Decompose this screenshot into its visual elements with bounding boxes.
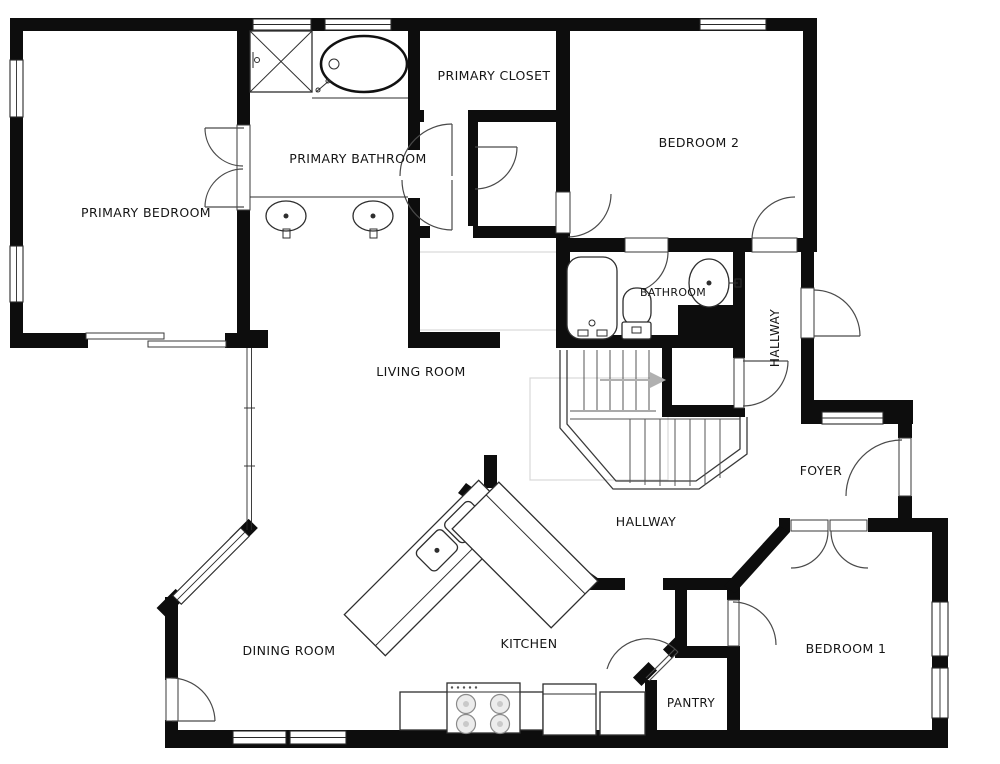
room-label-bedroom-2: BEDROOM 2 xyxy=(659,135,740,150)
room-label-bathroom: BATHROOM xyxy=(640,286,706,299)
room-label-pantry: PANTRY xyxy=(667,696,716,710)
window xyxy=(290,731,346,744)
room-label-primary-bedroom: PRIMARY BEDROOM xyxy=(81,205,211,220)
door xyxy=(625,238,668,293)
front-door xyxy=(846,438,911,496)
room-label-primary-bathroom: PRIMARY BATHROOM xyxy=(289,151,426,166)
refrigerator-icon xyxy=(543,684,596,735)
kitchen-fixtures xyxy=(344,480,645,735)
room-label-bedroom-1: BEDROOM 1 xyxy=(806,641,887,656)
staircase xyxy=(560,350,747,489)
room-label-foyer: FOYER xyxy=(800,463,843,478)
double-vanity-icon xyxy=(250,197,408,238)
shower-icon xyxy=(250,31,312,92)
floor-plan-drawing: PRIMARY BEDROOM PRIMARY BATHROOM PRIMARY… xyxy=(0,0,1000,764)
bathtub-icon xyxy=(567,257,617,339)
door xyxy=(752,197,797,252)
room-label-primary-closet: PRIMARY CLOSET xyxy=(438,68,551,83)
window-wall xyxy=(244,348,255,530)
sliding-door xyxy=(86,333,226,347)
counter xyxy=(600,692,645,735)
door xyxy=(556,192,611,237)
window xyxy=(932,602,948,656)
stove-icon xyxy=(447,683,520,734)
window xyxy=(822,412,883,424)
window xyxy=(325,19,391,30)
window xyxy=(253,19,311,30)
room-label-hallway-lower: HALLWAY xyxy=(616,514,676,529)
door xyxy=(801,288,860,338)
room-label-hallway-upper: HALLWAY xyxy=(768,309,782,367)
window xyxy=(10,60,23,117)
primary-bathroom-fixtures xyxy=(250,31,408,238)
double-door xyxy=(791,520,868,568)
window xyxy=(932,668,948,718)
window xyxy=(233,731,286,744)
bathtub-icon xyxy=(312,36,408,98)
double-door xyxy=(205,125,250,210)
room-label-kitchen: KITCHEN xyxy=(501,636,558,651)
door xyxy=(728,600,776,646)
walls xyxy=(10,18,948,748)
room-label-living-room: LIVING ROOM xyxy=(376,364,465,379)
floor-plan: PRIMARY BEDROOM PRIMARY BATHROOM PRIMARY… xyxy=(0,0,1000,764)
door xyxy=(166,678,215,721)
window xyxy=(700,19,766,30)
window xyxy=(10,246,23,302)
room-label-dining-room: DINING ROOM xyxy=(243,643,336,658)
room-labels: PRIMARY BEDROOM PRIMARY BATHROOM PRIMARY… xyxy=(81,68,886,710)
window-diagonal xyxy=(173,528,249,604)
